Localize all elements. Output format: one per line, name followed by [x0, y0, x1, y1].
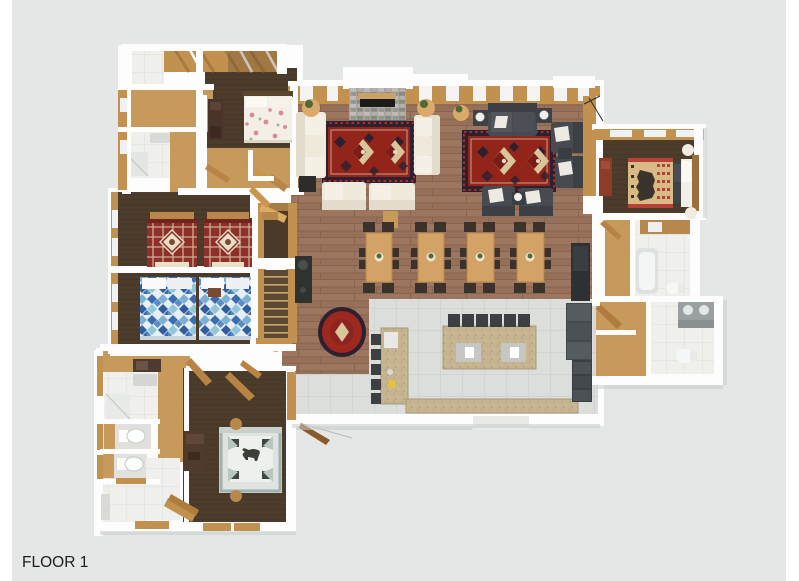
svg-text:FLOOR 1: FLOOR 1 — [22, 554, 88, 571]
